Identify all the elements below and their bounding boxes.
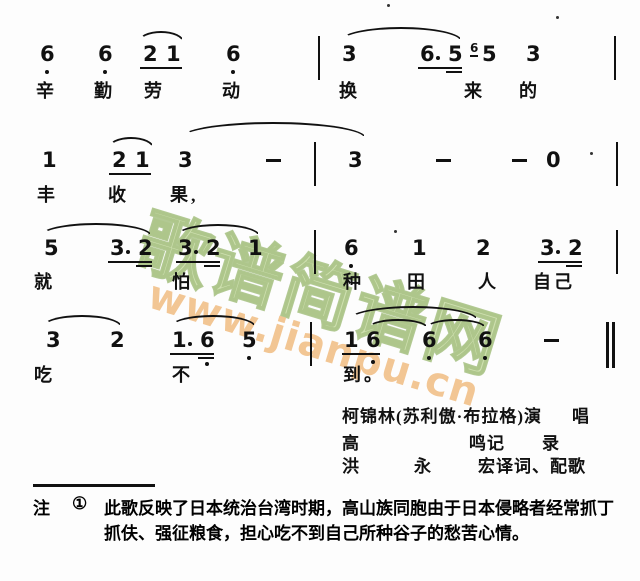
octave-dot xyxy=(45,70,49,74)
lyric-text: 果, xyxy=(170,181,199,207)
note-digit: 2 xyxy=(143,44,158,65)
footnote-line-1: 此歌反映了日本统治台湾时期，高山族同胞由于日本侵略者经常抓丁 xyxy=(104,494,614,519)
note-digit: 0 xyxy=(546,150,561,171)
lyric-text: 的 xyxy=(519,77,540,103)
slur-arc xyxy=(176,224,260,236)
note-beam-underline xyxy=(204,265,220,267)
extension-dash xyxy=(544,339,559,342)
note-beam-underline xyxy=(446,71,462,73)
note-digit: 3 xyxy=(178,238,193,259)
octave-dot xyxy=(427,356,431,360)
grace-note: 6 xyxy=(470,42,478,57)
lyric-text: 不 xyxy=(172,361,193,387)
note-beam-underline xyxy=(136,265,152,267)
note-digit: 1 xyxy=(172,330,187,351)
note-digit: 2 xyxy=(138,238,153,259)
note-digit: 1 xyxy=(248,238,263,259)
slur-arc xyxy=(138,31,184,42)
note-beam-underline xyxy=(342,353,380,355)
credit-text: 唱 xyxy=(572,402,590,427)
ink-speck xyxy=(590,152,593,155)
extension-dash xyxy=(436,159,451,162)
note-digit: 3 xyxy=(540,238,555,259)
credit-text: 录 xyxy=(542,429,560,454)
slur-arc xyxy=(180,122,366,138)
note-digit: 1 xyxy=(42,150,57,171)
octave-dot xyxy=(103,70,107,74)
note-beam-underline xyxy=(140,67,182,69)
lyric-text: 收 xyxy=(108,181,129,207)
barline xyxy=(616,142,618,186)
note-digit: 2 xyxy=(112,150,127,171)
note-digit: 6 xyxy=(366,330,381,351)
footnote-marker: ① xyxy=(72,494,87,514)
note-digit: 3 xyxy=(178,150,193,171)
note-digit: 1 xyxy=(135,150,150,171)
lyric-text: 种 xyxy=(343,268,364,294)
lyric-text: 勤 xyxy=(94,77,115,103)
octave-dot xyxy=(483,356,487,360)
credit-text: 洪 xyxy=(342,452,360,477)
footnote-label: 注 xyxy=(33,494,50,519)
note-digit: 5 xyxy=(242,330,257,351)
final-barline xyxy=(606,322,615,368)
note-beam-underline xyxy=(108,261,152,263)
note-digit: 6 xyxy=(422,330,437,351)
barline xyxy=(614,36,616,80)
note-digit: 3 xyxy=(526,44,541,65)
note-digit: 2 xyxy=(476,238,491,259)
lyric-text: 动 xyxy=(222,77,243,103)
note-digit: 5 xyxy=(482,44,497,65)
note-beam-underline xyxy=(176,261,220,263)
note-digit: 3 xyxy=(46,330,61,351)
octave-dot xyxy=(205,362,209,366)
barline xyxy=(314,230,316,274)
note-digit: 1 xyxy=(166,44,181,65)
lyric-text: 自己 xyxy=(533,268,575,294)
note-digit: 5 xyxy=(44,238,59,259)
lyric-text: 田 xyxy=(407,268,428,294)
note-digit: 2 xyxy=(110,330,125,351)
barline xyxy=(310,322,312,366)
slur-arc xyxy=(340,27,462,41)
lyric-text: 吃 xyxy=(34,361,55,387)
note-digit: 6 xyxy=(40,44,55,65)
footnote-divider xyxy=(33,484,155,487)
note-digit: 6 xyxy=(226,44,241,65)
credit-text: 柯锦林(苏利傲·布拉格)演 xyxy=(342,402,542,427)
barline xyxy=(314,142,316,186)
note-digit: 1 xyxy=(412,238,427,259)
note-digit: 3 xyxy=(110,238,125,259)
slur-arc xyxy=(42,315,122,327)
slur-arc xyxy=(40,223,152,236)
octave-dot xyxy=(231,70,235,74)
lyric-text: 换 xyxy=(339,77,360,103)
note-digit: 3 xyxy=(348,150,363,171)
barline xyxy=(318,36,320,80)
lyric-text: 到。 xyxy=(343,361,385,387)
note-beam-underline xyxy=(418,67,462,69)
note-digit: 3 xyxy=(342,44,357,65)
extension-dash xyxy=(266,159,281,162)
credit-text: 永 xyxy=(414,452,432,477)
note-digit: 2 xyxy=(568,238,583,259)
octave-dot xyxy=(247,356,251,360)
slur-arc xyxy=(170,315,256,327)
slur-arc xyxy=(348,306,478,320)
note-beam-underline xyxy=(170,353,214,355)
footnote-line-2: 抓伕、强征粮食，担心吃不到自己所种谷子的愁苦心情。 xyxy=(104,519,529,544)
note-digit: 6 xyxy=(478,330,493,351)
lyric-text: 丰 xyxy=(37,181,58,207)
note-digit: 6 xyxy=(200,330,215,351)
lyric-text: 就 xyxy=(34,268,55,294)
note-digit: 2 xyxy=(206,238,221,259)
credit-text: 宏译词、配歌 xyxy=(478,452,586,477)
ink-speck xyxy=(556,16,559,19)
sheet-music-page: 歌谱简谱网 www.jianpu.cn 66216365653辛勤劳动换来的12… xyxy=(0,0,640,581)
note-beam-underline xyxy=(109,173,151,175)
barline xyxy=(616,230,618,274)
note-digit: 1 xyxy=(344,330,359,351)
note-digit: 6 xyxy=(420,44,435,65)
credit-text: 高 xyxy=(342,429,360,454)
ink-speck xyxy=(387,4,390,7)
credit-text: 鸣记 xyxy=(469,429,505,454)
lyric-text: 怕 xyxy=(172,268,193,294)
note-beam-underline xyxy=(198,357,214,359)
slur-arc xyxy=(368,319,428,328)
note-digit: 6 xyxy=(344,238,359,259)
lyric-text: 劳 xyxy=(144,77,165,103)
rhythm-dot xyxy=(436,56,440,60)
lyric-text: 人 xyxy=(478,268,499,294)
extension-dash xyxy=(512,159,527,162)
rhythm-dot xyxy=(188,342,192,346)
rhythm-dot xyxy=(556,250,560,254)
lyric-text: 来 xyxy=(464,77,485,103)
note-digit: 6 xyxy=(98,44,113,65)
slur-arc xyxy=(426,319,486,328)
note-beam-underline xyxy=(538,261,582,263)
lyric-text: 辛 xyxy=(36,77,57,103)
ink-speck xyxy=(394,230,397,233)
note-digit: 5 xyxy=(448,44,463,65)
note-beam-underline xyxy=(566,265,582,267)
rhythm-dot xyxy=(194,250,198,254)
slur-arc xyxy=(108,137,154,148)
rhythm-dot xyxy=(126,250,130,254)
